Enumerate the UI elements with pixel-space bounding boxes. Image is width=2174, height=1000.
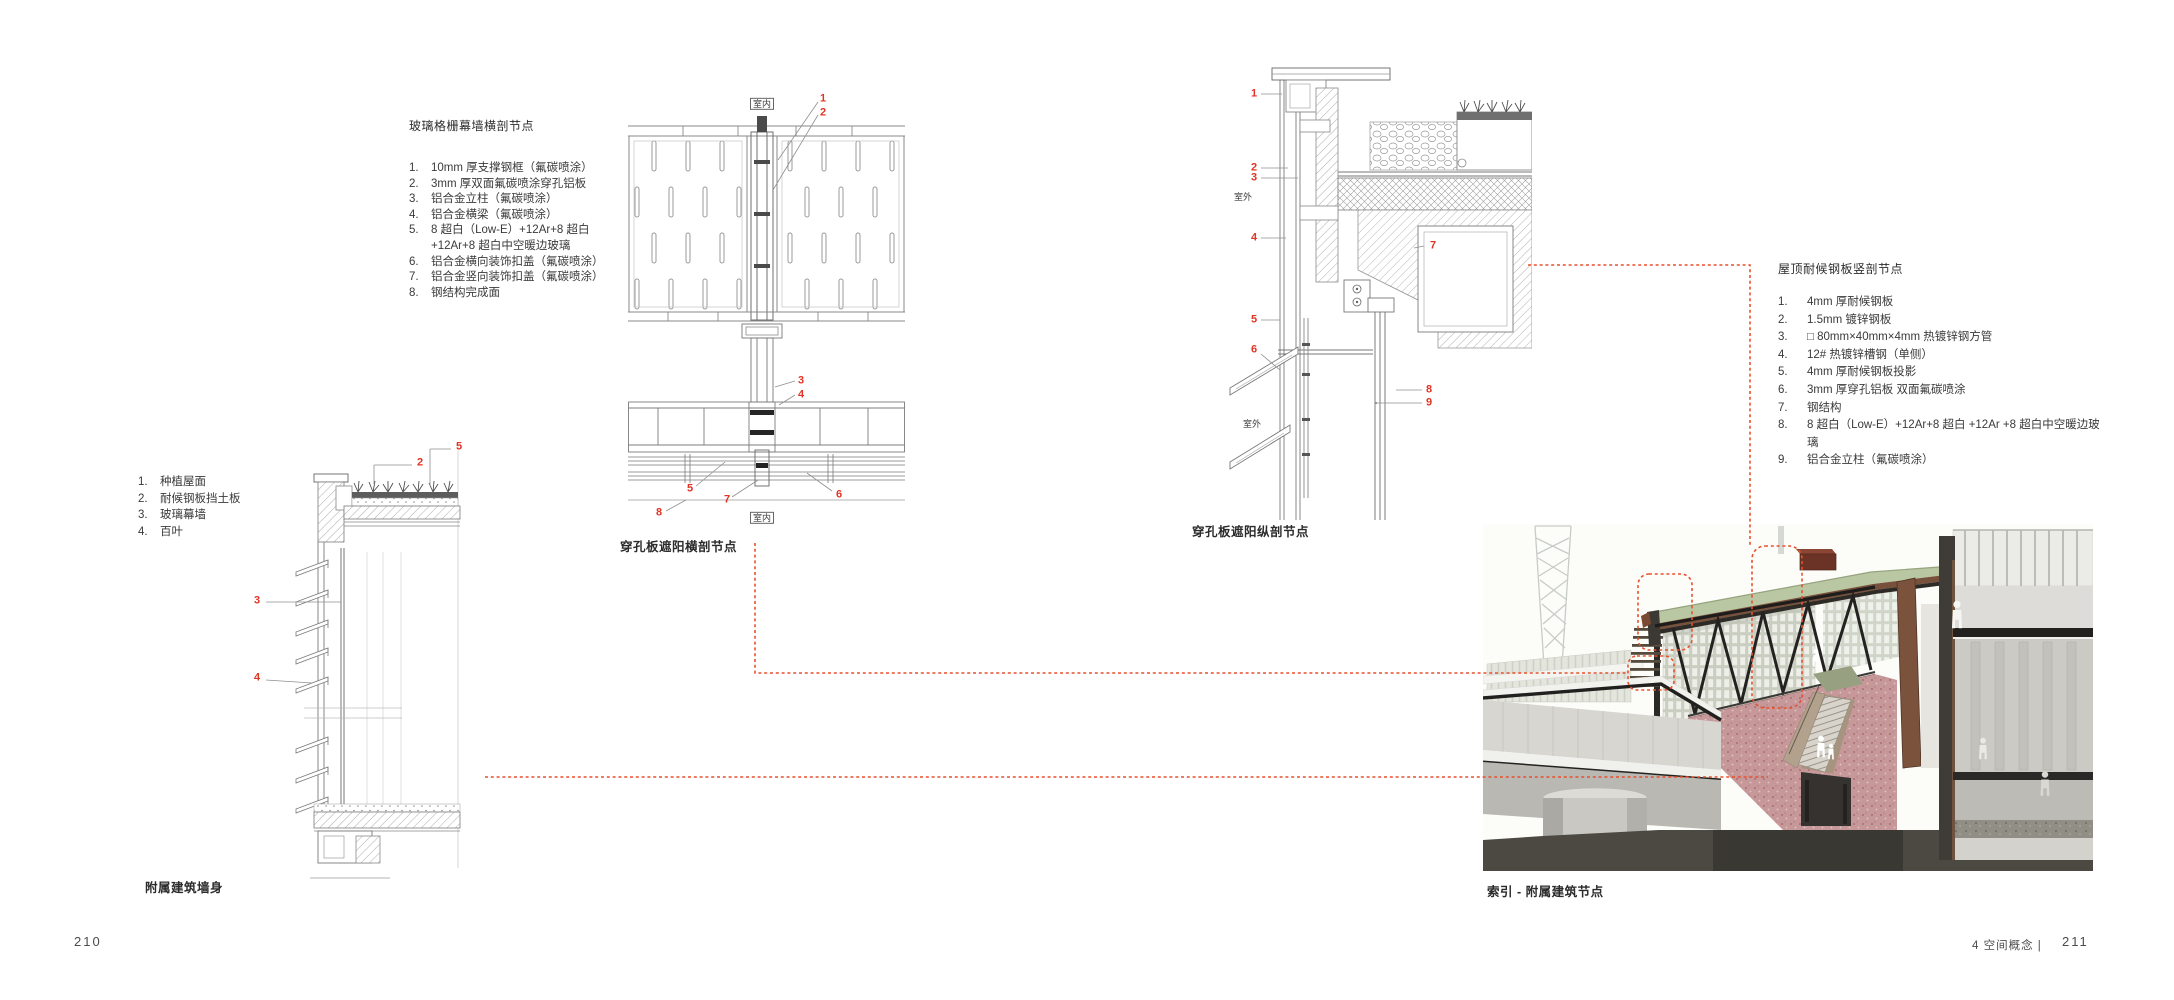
legend-title: 玻璃格栅幕墙横剖节点: [409, 117, 607, 134]
list-item: 8.8 超白（Low-E）+12Ar+8 超白 +12Ar +8 超白中空暖边玻…: [1778, 417, 2108, 452]
list-item-text: 4mm 厚耐候钢板: [1807, 294, 1893, 312]
center-detail-drawing: [628, 88, 905, 525]
list-item-number: 3.: [1778, 329, 1807, 347]
legend-roof-steel: 屋顶耐候钢板竖剖节点 1.4mm 厚耐候钢板2.1.5mm 镀锌钢板3.□ 80…: [1778, 260, 2108, 470]
list-item-text: 钢结构完成面: [431, 286, 500, 302]
list-item-number: 1.: [1778, 294, 1807, 312]
list-item-number: 4.: [1778, 347, 1807, 365]
caption-center-detail: 穿孔板遮阳横剖节点: [620, 536, 737, 555]
list-item-text: 8 超白（Low-E）+12Ar+8 超白 +12Ar+8 超白中空暖边玻璃: [431, 223, 607, 254]
list-item-text: 百叶: [160, 524, 183, 541]
section-render-image: [1483, 524, 2093, 871]
page-number-left: 210: [74, 934, 102, 949]
list-item-text: 铝合金立柱（氟碳喷涂）: [1807, 452, 1934, 470]
list-item-text: 10mm 厚支撑钢框（氟碳喷涂）: [431, 161, 593, 177]
list-item-text: □ 80mm×40mm×4mm 热镀锌钢方管: [1807, 329, 1992, 347]
list-item: 4.铝合金横梁（氟碳喷涂）: [409, 208, 607, 224]
list-item-number: 1.: [409, 161, 431, 177]
list-item: 6.3mm 厚穿孔铝板 双面氟碳喷涂: [1778, 382, 2108, 400]
caption-render-index: 索引 - 附属建筑节点: [1487, 881, 1604, 900]
list-item-number: 6.: [1778, 382, 1807, 400]
list-item-text: 3mm 厚穿孔铝板 双面氟碳喷涂: [1807, 382, 1965, 400]
list-item-text: 铝合金横向装饰扣盖（氟碳喷涂）: [431, 255, 604, 271]
caption-left-detail: 附属建筑墙身: [145, 877, 223, 896]
list-item-text: 耐候钢板挡土板: [160, 491, 241, 508]
list-item-text: 8 超白（Low-E）+12Ar+8 超白 +12Ar +8 超白中空暖边玻璃: [1807, 417, 2108, 452]
list-item-text: 铝合金立柱（氟碳喷涂）: [431, 192, 558, 208]
list-item-text: 钢结构: [1807, 400, 1842, 418]
legend-items: 1.10mm 厚支撑钢框（氟碳喷涂）2.3mm 厚双面氟碳喷涂穿孔铝板3.铝合金…: [409, 161, 607, 301]
list-item: 6.铝合金横向装饰扣盖（氟碳喷涂）: [409, 255, 607, 271]
list-item: 2.3mm 厚双面氟碳喷涂穿孔铝板: [409, 177, 607, 193]
book-spread-page: 玻璃格栅幕墙横剖节点 1.10mm 厚支撑钢框（氟碳喷涂）2.3mm 厚双面氟碳…: [0, 0, 2174, 1000]
list-item-number: 2.: [138, 491, 160, 508]
list-item-number: 2.: [1778, 312, 1807, 330]
list-item: 8.钢结构完成面: [409, 286, 607, 302]
list-item: 3.□ 80mm×40mm×4mm 热镀锌钢方管: [1778, 329, 2108, 347]
caption-right-detail: 穿孔板遮阳纵剖节点: [1192, 521, 1309, 540]
list-item-text: 12# 热镀锌槽钢（单侧）: [1807, 347, 1933, 365]
list-item-text: 玻璃幕墙: [160, 507, 206, 524]
list-item-number: 5.: [1778, 364, 1807, 382]
list-item: 1.10mm 厚支撑钢框（氟碳喷涂）: [409, 161, 607, 177]
list-item-number: 7.: [409, 270, 431, 286]
right-detail-drawing: [1228, 58, 1532, 522]
list-item: 4.12# 热镀锌槽钢（单侧）: [1778, 347, 2108, 365]
list-item: 5.8 超白（Low-E）+12Ar+8 超白 +12Ar+8 超白中空暖边玻璃: [409, 223, 607, 254]
list-item-text: 4mm 厚耐候钢板投影: [1807, 364, 1916, 382]
list-item-number: 1.: [138, 474, 160, 491]
left-detail-drawing: [240, 432, 466, 882]
list-item-number: 7.: [1778, 400, 1807, 418]
legend-title: 屋顶耐候钢板竖剖节点: [1778, 260, 2108, 277]
list-item-number: 3.: [138, 507, 160, 524]
list-item-number: 5.: [409, 223, 431, 254]
list-item-number: 6.: [409, 255, 431, 271]
list-item-number: 4.: [138, 524, 160, 541]
list-item: 2.1.5mm 镀锌钢板: [1778, 312, 2108, 330]
page-number-right: 211: [2062, 934, 2089, 949]
list-item-number: 9.: [1778, 452, 1807, 470]
list-item: 3.铝合金立柱（氟碳喷涂）: [409, 192, 607, 208]
legend-items: 1.4mm 厚耐候钢板2.1.5mm 镀锌钢板3.□ 80mm×40mm×4mm…: [1778, 294, 2108, 470]
list-item-number: 4.: [409, 208, 431, 224]
list-item-number: 8.: [409, 286, 431, 302]
section-label: 4 空间概念 |: [1972, 937, 2042, 953]
list-item: 1.4mm 厚耐候钢板: [1778, 294, 2108, 312]
list-item-text: 铝合金横梁（氟碳喷涂）: [431, 208, 558, 224]
list-item-text: 1.5mm 镀锌钢板: [1807, 312, 1891, 330]
list-item-number: 3.: [409, 192, 431, 208]
list-item-number: 2.: [409, 177, 431, 193]
list-item: 7.铝合金竖向装饰扣盖（氟碳喷涂）: [409, 270, 607, 286]
list-item-number: 8.: [1778, 417, 1807, 452]
list-item-text: 种植屋面: [160, 474, 206, 491]
list-item: 5.4mm 厚耐候钢板投影: [1778, 364, 2108, 382]
legend-glass-curtain: 玻璃格栅幕墙横剖节点 1.10mm 厚支撑钢框（氟碳喷涂）2.3mm 厚双面氟碳…: [409, 117, 607, 301]
list-item: 7.钢结构: [1778, 400, 2108, 418]
list-item: 9.铝合金立柱（氟碳喷涂）: [1778, 452, 2108, 470]
list-item-text: 3mm 厚双面氟碳喷涂穿孔铝板: [431, 177, 586, 193]
list-item-text: 铝合金竖向装饰扣盖（氟碳喷涂）: [431, 270, 604, 286]
